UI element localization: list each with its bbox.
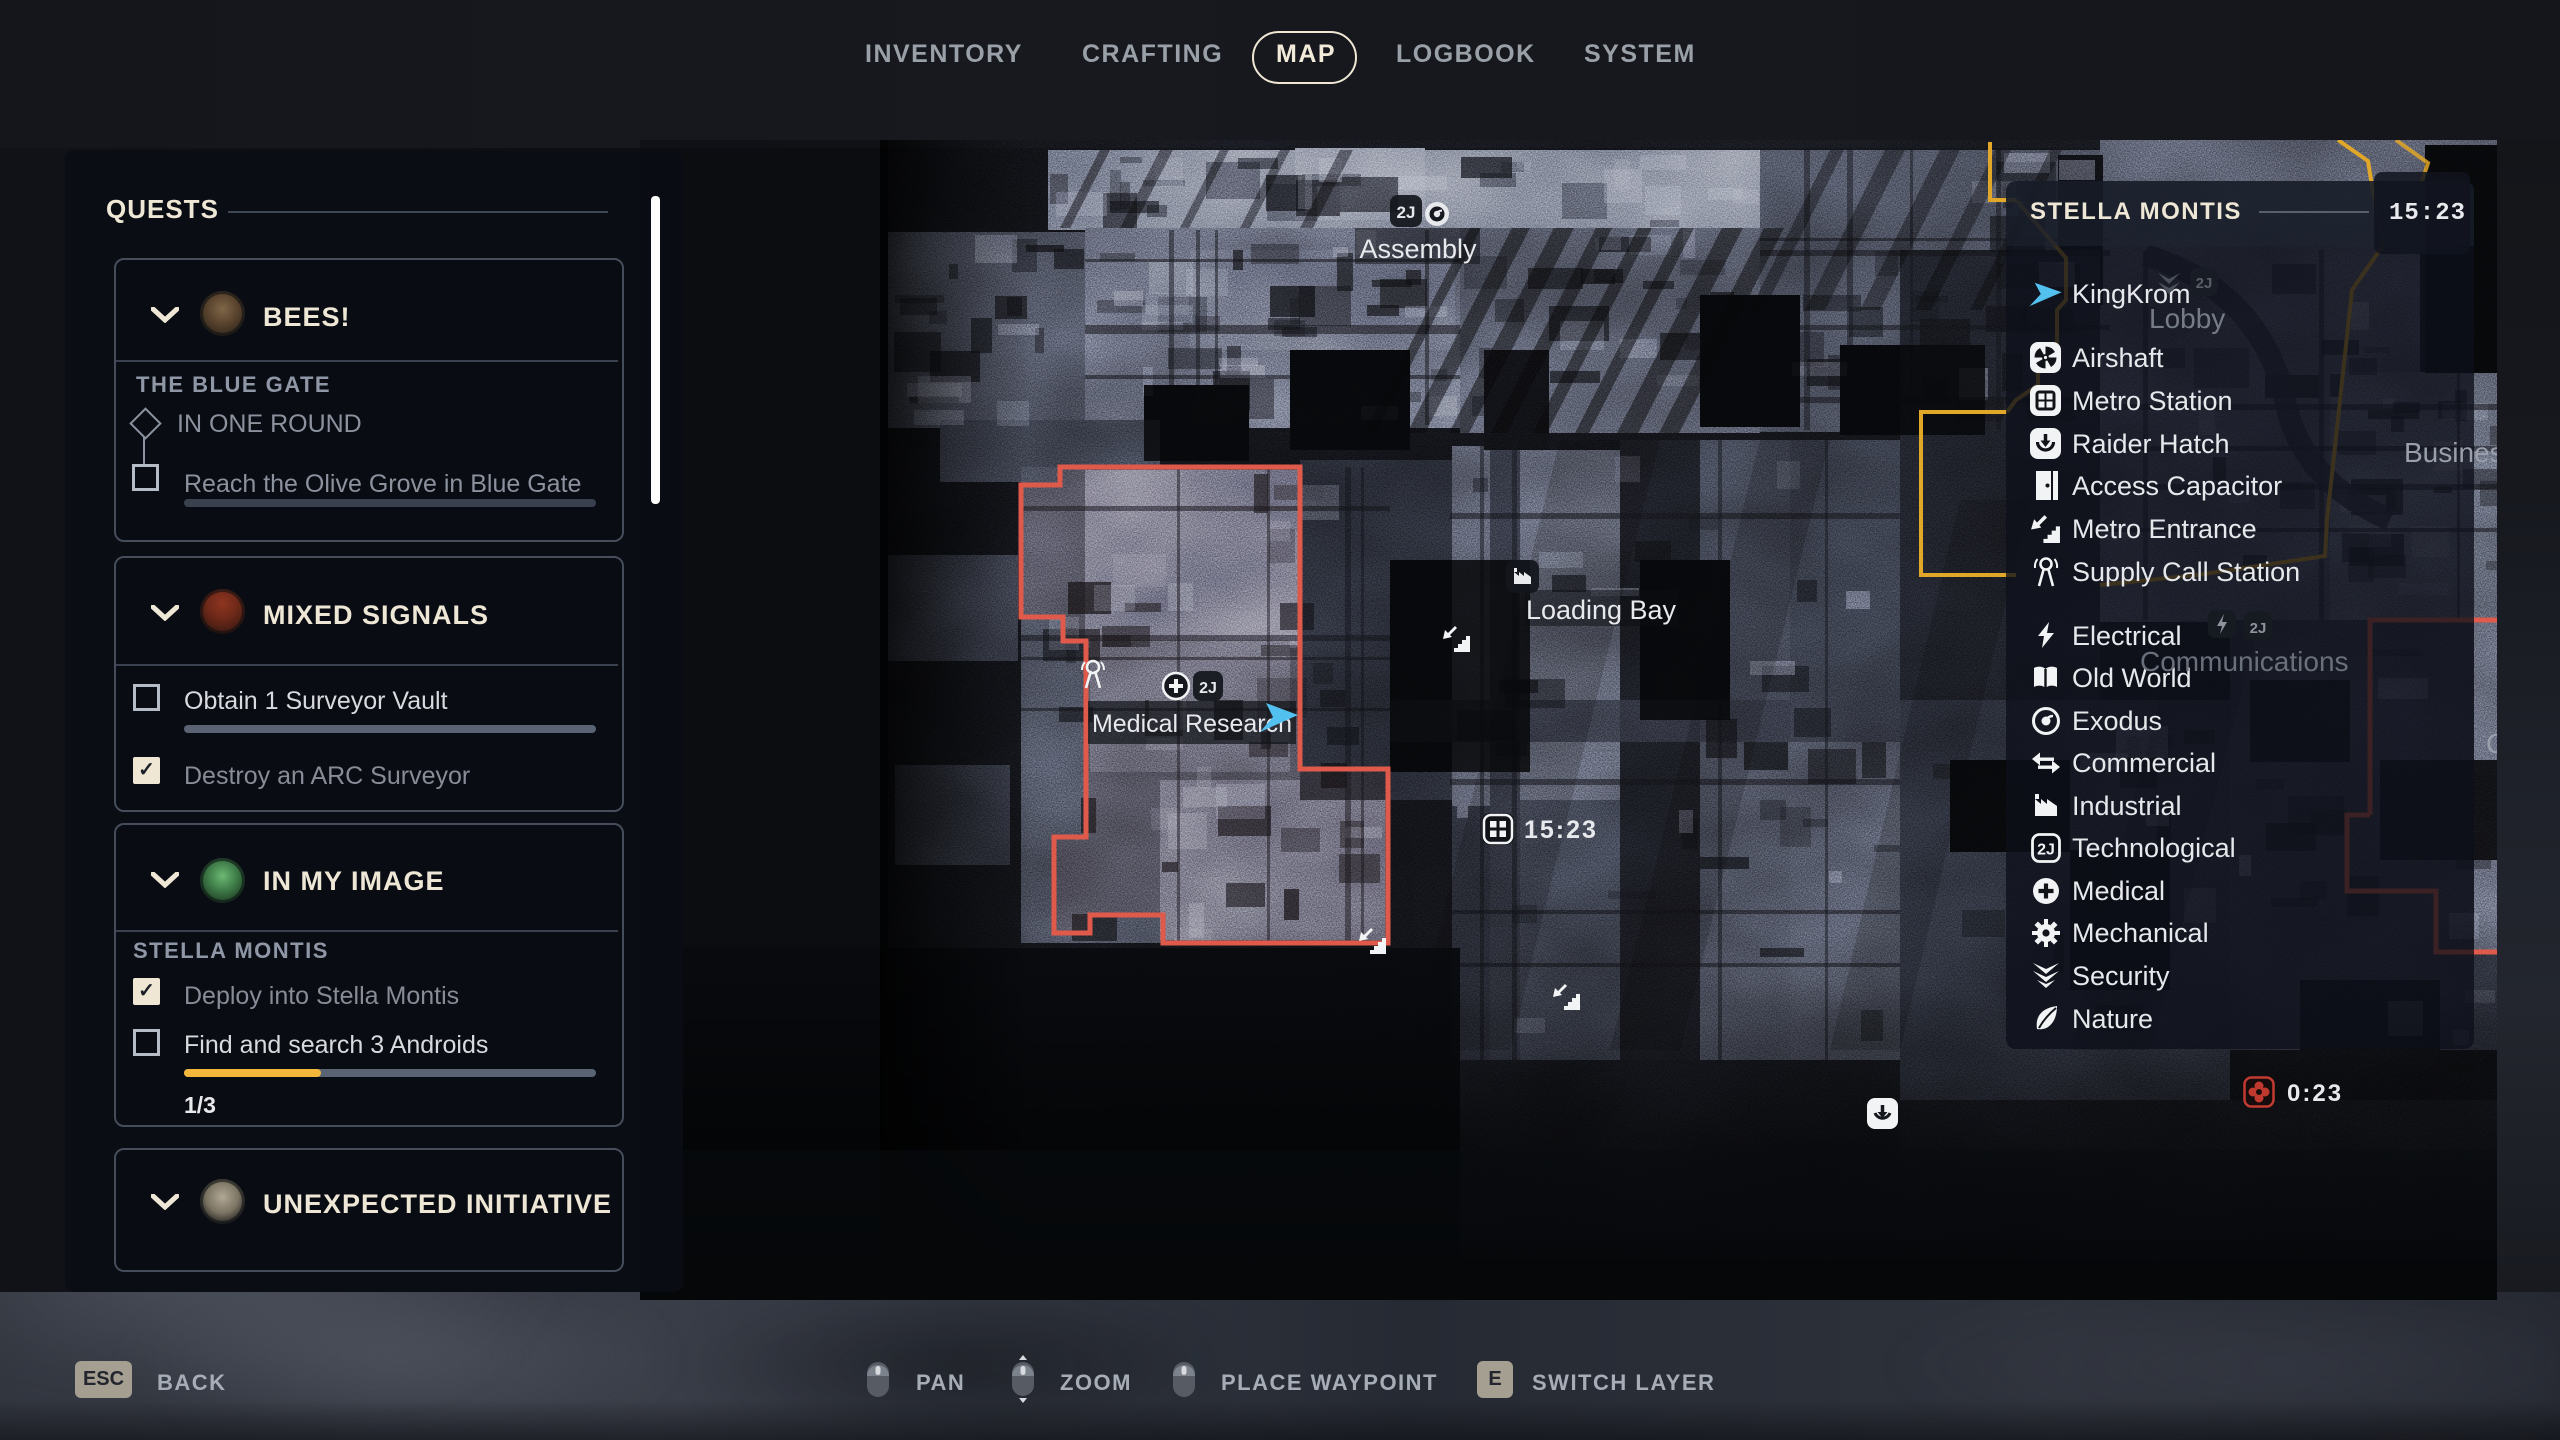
svg-text:2J: 2J xyxy=(2196,275,2213,292)
svg-text:15:23: 15:23 xyxy=(1524,816,1598,844)
svg-text:2J: 2J xyxy=(1199,680,1217,697)
svg-text:2J: 2J xyxy=(2250,620,2267,637)
svg-text:Assembly: Assembly xyxy=(1359,234,1477,264)
svg-text:Loading Bay: Loading Bay xyxy=(1526,595,1677,625)
svg-text:2J: 2J xyxy=(2037,842,2055,859)
svg-text:2J: 2J xyxy=(1397,203,1416,222)
svg-text:0:23: 0:23 xyxy=(2287,1080,2343,1107)
svg-text:Medical Research: Medical Research xyxy=(1092,710,1292,738)
